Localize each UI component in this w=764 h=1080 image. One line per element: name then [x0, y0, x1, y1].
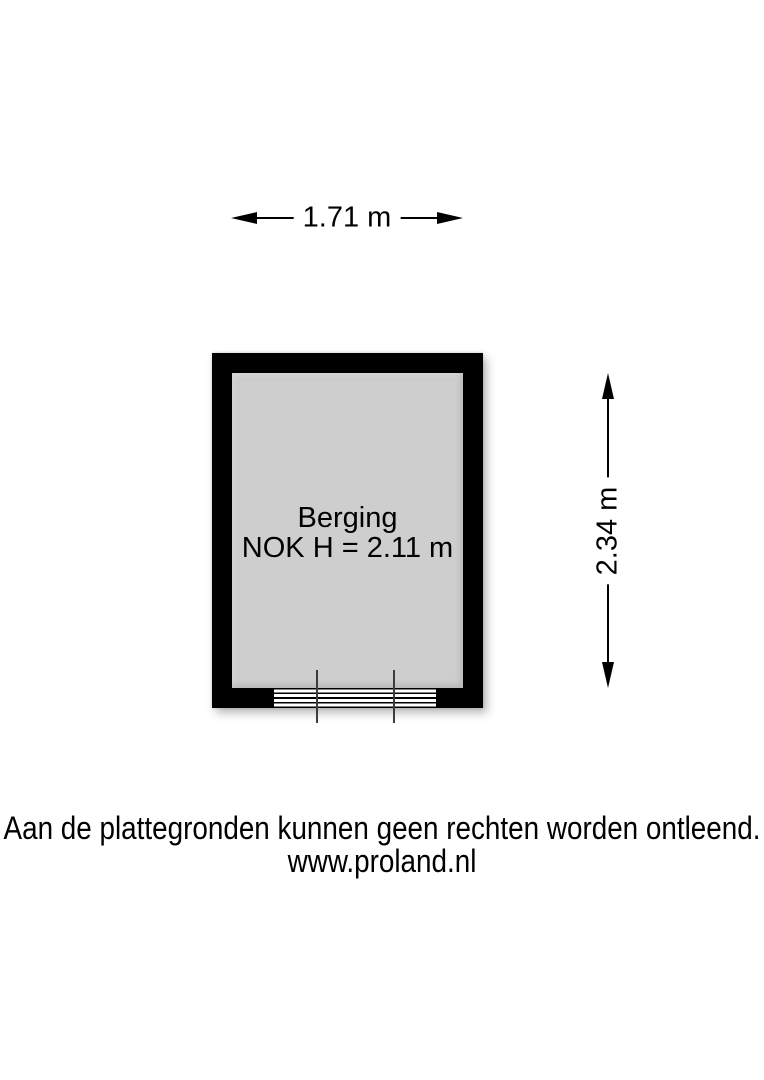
arrow-right-icon: [437, 212, 463, 224]
footer: Aan de plattegronden kunnen geen rechten…: [0, 812, 764, 878]
width-dimension-label: 1.71 m: [294, 202, 401, 235]
website-text: www.proland.nl: [0, 845, 764, 878]
door-frame-line-left: [316, 670, 318, 723]
room-berging: Berging NOK H = 2.11 m: [212, 353, 483, 708]
room-ridge-height-label: NOK H = 2.11 m: [212, 533, 483, 563]
arrow-down-icon: [602, 662, 614, 688]
door-frame-line-right: [393, 670, 395, 723]
height-dimension-label: 2.34 m: [592, 477, 625, 584]
door-opening: [274, 688, 436, 708]
floorplan-page: 1.71 m Berging NOK H = 2.11 m 2.34 m Aan…: [0, 0, 764, 1080]
room-label: Berging NOK H = 2.11 m: [212, 503, 483, 563]
disclaimer-text: Aan de plattegronden kunnen geen rechten…: [0, 812, 764, 845]
room-name: Berging: [212, 503, 483, 533]
